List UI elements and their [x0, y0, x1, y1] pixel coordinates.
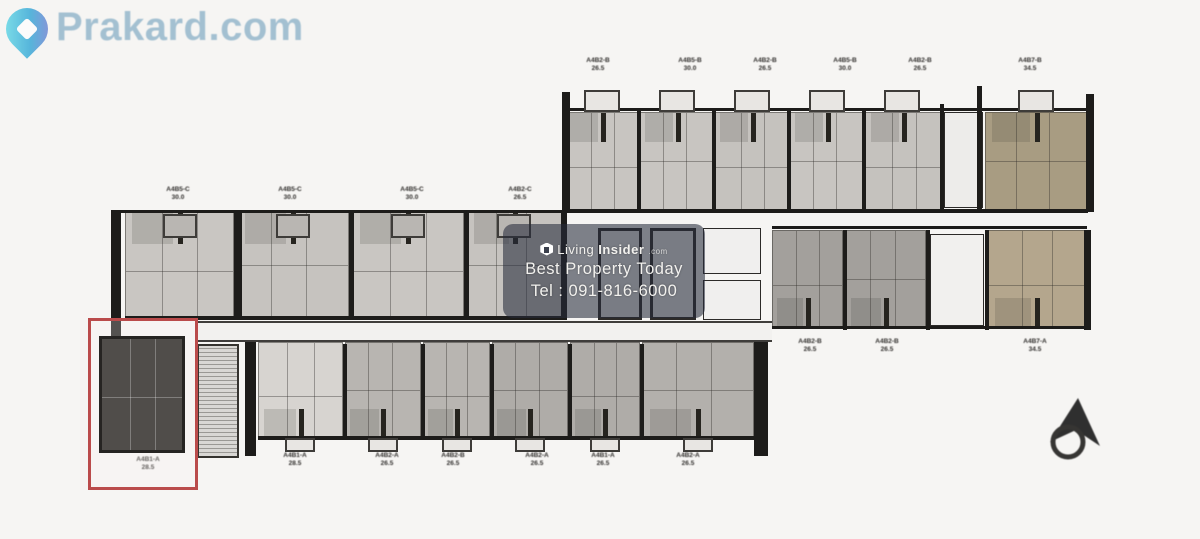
balcony-tab [285, 438, 315, 452]
watermark-tagline: Best Property Today [525, 260, 683, 279]
wall [640, 344, 644, 440]
wall [843, 230, 847, 330]
wall [862, 108, 866, 212]
wall [1084, 230, 1091, 330]
unit-entry-tab [391, 214, 425, 238]
watermark-brand-tld: .com [648, 247, 667, 256]
wall [637, 108, 641, 212]
balcony-tab [734, 90, 770, 112]
wall [421, 344, 425, 440]
floorplan-unit [772, 230, 843, 328]
unit-entry-tab [163, 214, 197, 238]
wall [245, 338, 256, 456]
unit-label: A4B5-C30.0 [278, 186, 301, 202]
unit-label: A4B2-A26.5 [525, 452, 548, 468]
core-room [703, 228, 761, 274]
wall [940, 104, 944, 212]
wall [121, 210, 562, 213]
floorplan-unit [423, 342, 490, 438]
balcony-tab [584, 90, 620, 112]
floorplan-unit [570, 342, 640, 438]
wall [787, 108, 791, 212]
balcony-tab [884, 90, 920, 112]
watermark-brand-light: Living [557, 242, 594, 257]
prakard-logo-text: Prakard.com [56, 5, 304, 50]
unit-label: A4B1-A26.5 [591, 452, 614, 468]
balcony-tab [809, 90, 845, 112]
balcony-tab [683, 438, 713, 452]
unit-label: A4B2-B26.5 [753, 57, 776, 73]
wall [565, 209, 1088, 213]
unit-label: A4B2-B26.5 [908, 57, 931, 73]
unit-entry-tab [276, 214, 310, 238]
floorplan-unit [640, 112, 715, 210]
floorplan-unit [865, 112, 942, 210]
wall [464, 212, 469, 320]
balcony-tab [368, 438, 398, 452]
unit-label: A4B2-C26.5 [508, 186, 531, 202]
watermark-phone: Tel : 091-816-6000 [531, 282, 678, 301]
unit-label: A4B1-A28.5 [283, 452, 306, 468]
wall [754, 328, 768, 456]
unit-label: A4B2-B26.5 [441, 452, 464, 468]
balcony-tab [1018, 90, 1054, 112]
unit-label: A4B2-B26.5 [875, 338, 898, 354]
unit-label: A4B2-A26.5 [676, 452, 699, 468]
balcony-tab [515, 438, 545, 452]
stairwell [197, 344, 239, 458]
floorplan-unit [988, 230, 1086, 328]
watermark: LivingInsider.com Best Property Today Te… [503, 224, 705, 318]
watermark-brand-bold: Insider [598, 242, 644, 257]
prakard-pin-icon [0, 0, 57, 59]
wall [490, 344, 494, 440]
unit-label: A4B5-B30.0 [678, 57, 701, 73]
floorplan-unit [985, 112, 1088, 210]
core-room [930, 234, 984, 326]
wall [712, 108, 716, 212]
floorplan-unit [715, 112, 790, 210]
wall [772, 226, 1087, 229]
wall [349, 212, 354, 320]
wall [568, 344, 572, 440]
wall [258, 436, 755, 440]
unit-label: A4B5-C30.0 [400, 186, 423, 202]
north-arrow-icon [1042, 394, 1108, 464]
floorplan-unit [845, 230, 926, 328]
unit-label: A4B5-B30.0 [833, 57, 856, 73]
floorplan-unit [790, 112, 865, 210]
wall [926, 230, 930, 330]
wall [234, 212, 242, 320]
wall [1086, 94, 1094, 212]
balcony-tab [659, 90, 695, 112]
floorplan-unit [258, 342, 343, 438]
prakard-logo[interactable]: Prakard.com [6, 4, 304, 50]
floorplan-unit [642, 342, 754, 438]
livinginsider-cube-icon [540, 243, 553, 256]
wall [977, 86, 982, 212]
unit-label: A4B2-A26.5 [375, 452, 398, 468]
unit-label: A4B2-B26.5 [798, 338, 821, 354]
core-room [703, 280, 761, 320]
highlighted-unit [99, 336, 185, 453]
unit-label: A4B7-A34.5 [1023, 338, 1046, 354]
watermark-brand: LivingInsider.com [540, 242, 667, 257]
floorplan-unit [492, 342, 568, 438]
floorplan-unit [345, 342, 421, 438]
unit-label: A4B2-B26.5 [586, 57, 609, 73]
unit-label: A4B7-B34.5 [1018, 57, 1041, 73]
wall [772, 326, 1087, 329]
balcony-tab [442, 438, 472, 452]
balcony-tab [590, 438, 620, 452]
unit-label: A4B5-C30.0 [166, 186, 189, 202]
corridor [196, 321, 772, 342]
floorplan-unit [565, 112, 640, 210]
wall [343, 344, 347, 440]
wall [985, 230, 989, 330]
